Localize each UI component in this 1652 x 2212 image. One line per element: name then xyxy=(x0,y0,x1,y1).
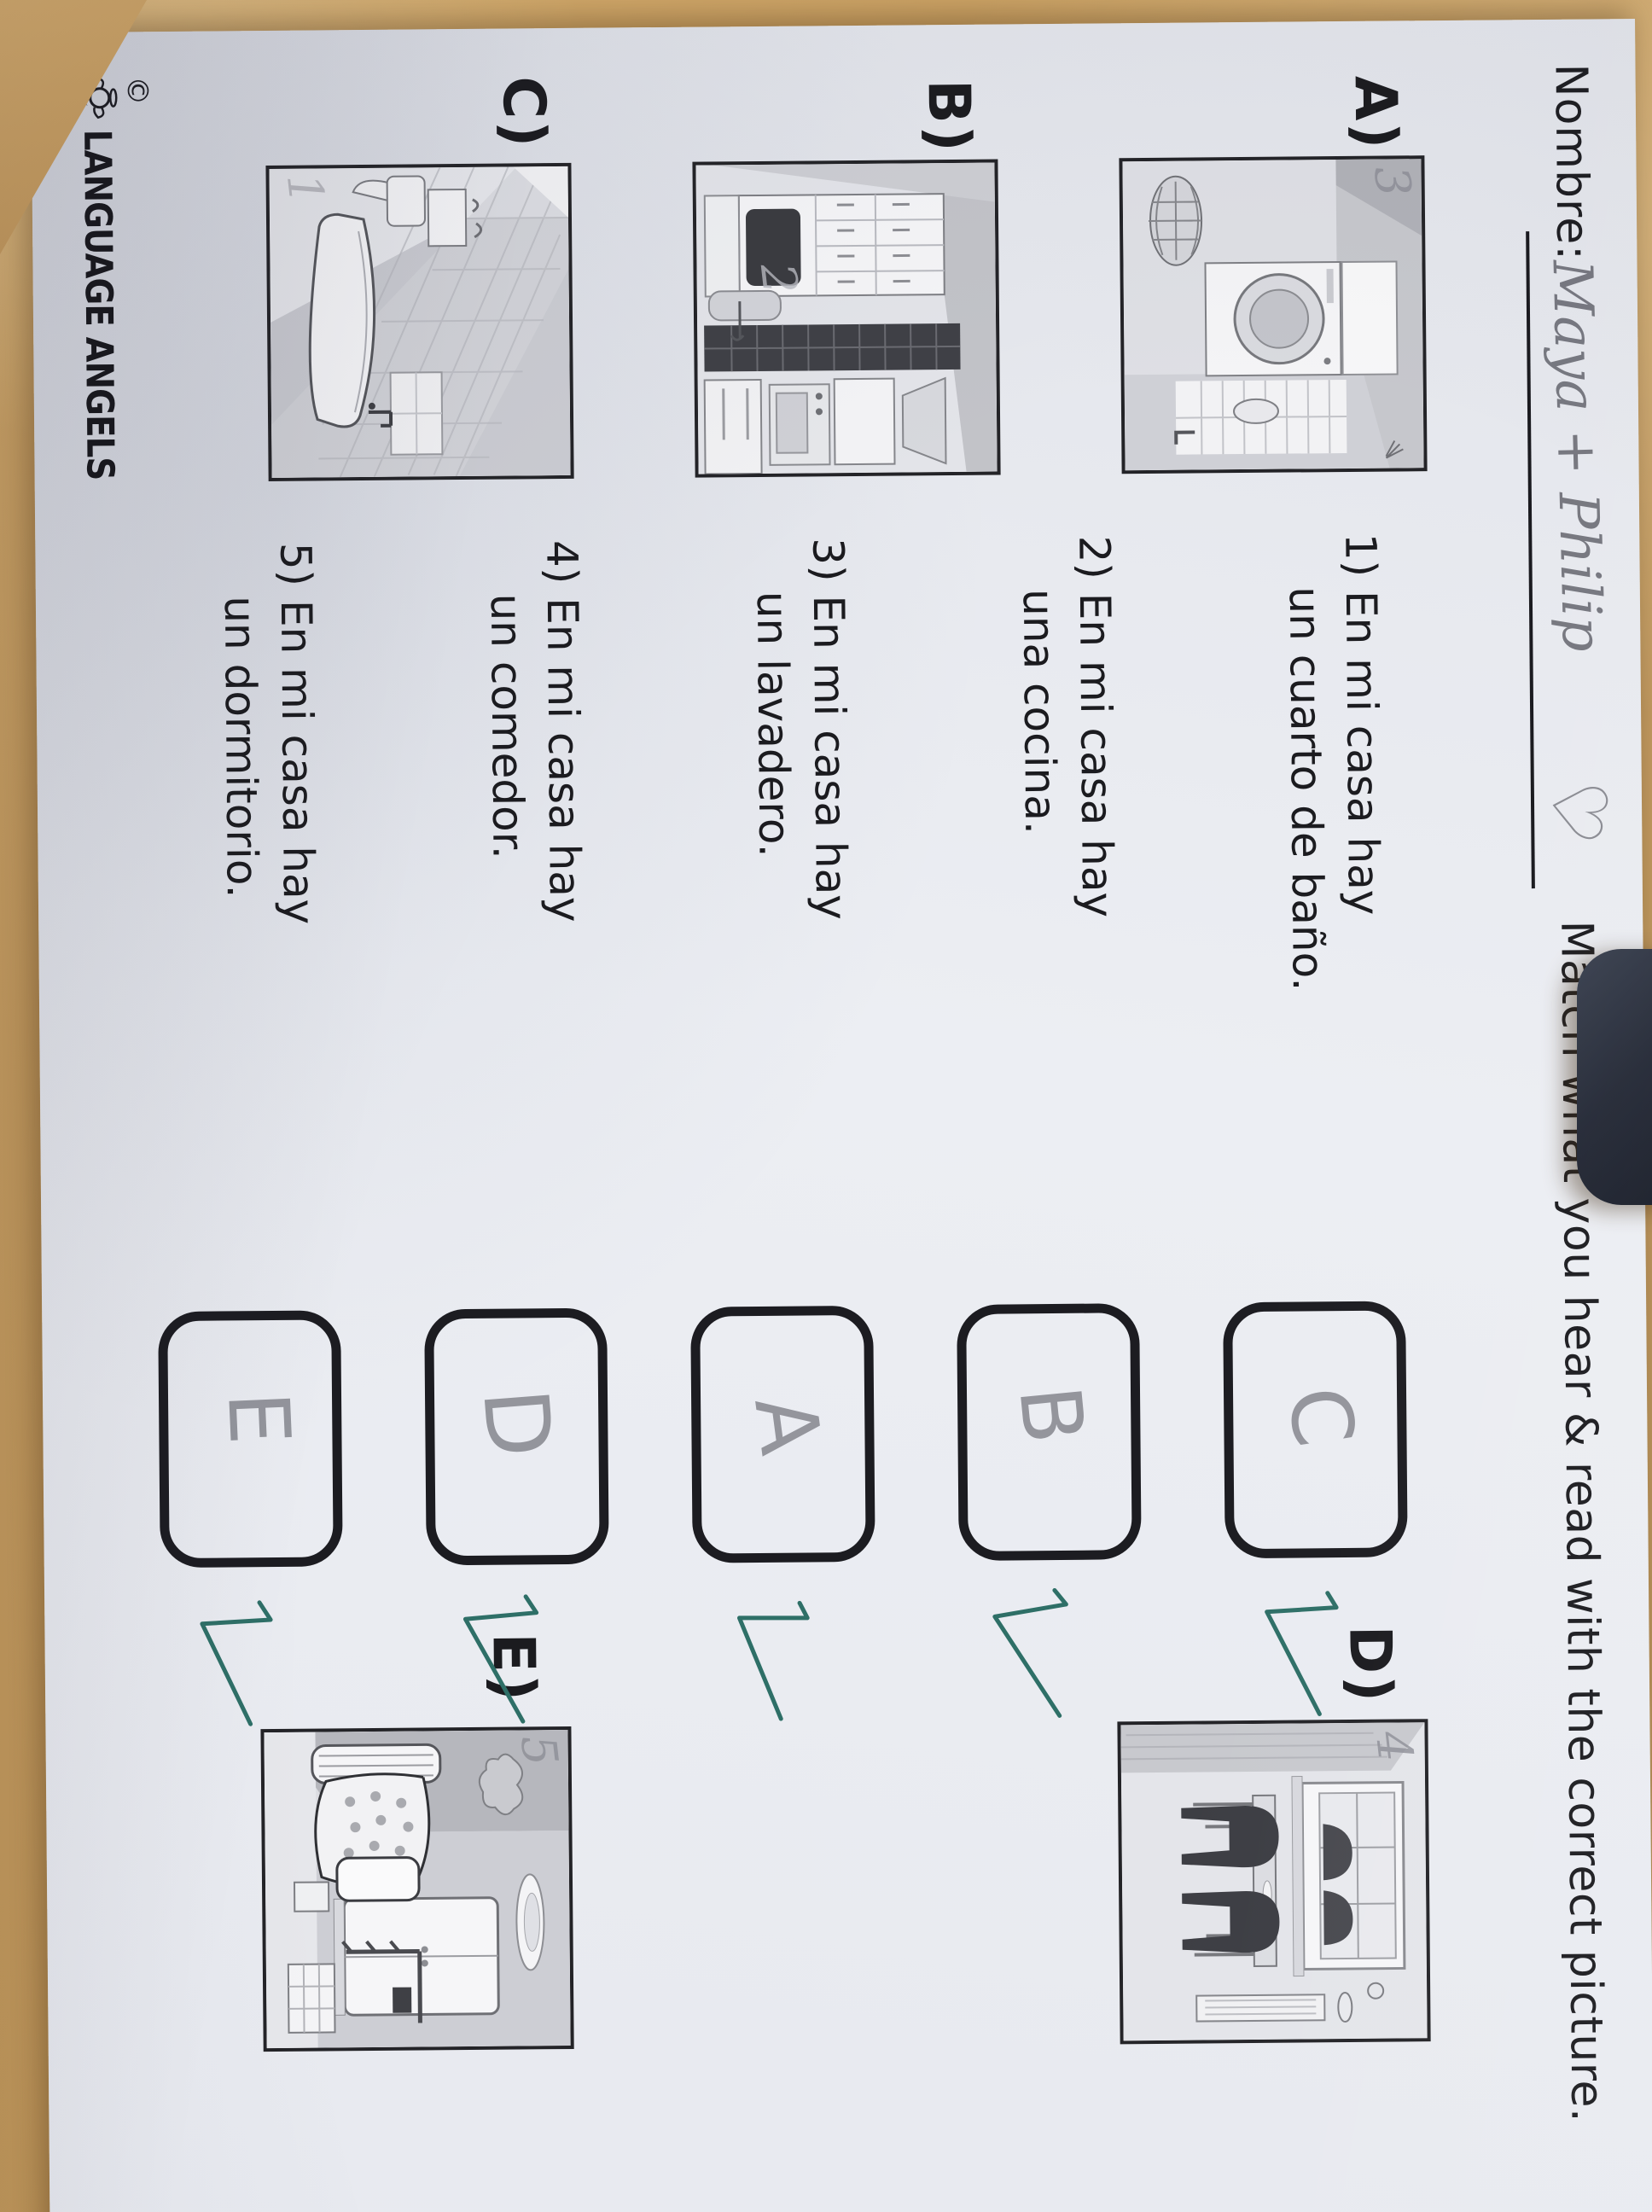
picture-label-a: A) xyxy=(1341,75,1410,150)
picture-a-laundry-room: 3 xyxy=(1119,155,1427,474)
question-1-text: 1) En mi casa hay un cuarto de baño. xyxy=(1276,533,1393,992)
handwritten-answer-5: E xyxy=(171,1296,345,1540)
kitchen-icon xyxy=(695,163,997,474)
question-2-text: 2) En mi casa hay una cocina. xyxy=(1009,535,1126,918)
answer-box-5: E xyxy=(158,1310,343,1568)
picture-e-bedroom: 5 xyxy=(260,1726,573,2052)
question-3-text: 3) En mi casa hay un lavadero. xyxy=(743,538,859,921)
worksheet-sheet: Nombre: Maya + Philip ♡ Match what you h… xyxy=(31,19,1652,2212)
question-4-text: 4) En mi casa hay un comedor. xyxy=(477,540,593,923)
question-row-5: 5) En mi casa hay un dormitorio. E xyxy=(137,542,344,1755)
dining-room-icon xyxy=(1120,1722,1427,2040)
handwritten-answer-3: A xyxy=(690,1297,884,1554)
handwritten-answer-2: B xyxy=(958,1289,1144,1540)
laundry-room-icon xyxy=(1122,159,1423,470)
picture-c-bathroom: 1 xyxy=(265,163,573,481)
teacher-check-3 xyxy=(670,1559,835,1736)
question-row-2: 2) En mi casa hay una cocina. B xyxy=(936,535,1143,1749)
pencil-number-on-b: 2 xyxy=(749,260,808,297)
dark-object-on-desk xyxy=(1577,949,1652,1205)
answer-box-3: A xyxy=(690,1306,875,1563)
teacher-check-2 xyxy=(944,1563,1094,1727)
pencil-number-on-c: 1 xyxy=(276,171,334,207)
bedroom-icon xyxy=(264,1730,570,2048)
picture-d-dining-room: 4 xyxy=(1117,1719,1430,2044)
answer-box-1: C xyxy=(1223,1301,1408,1558)
pencil-number-on-a: 3 xyxy=(1363,163,1422,200)
logo-text: LANGUAGE ANGELS xyxy=(76,130,123,480)
question-3-number: 3) xyxy=(803,538,852,582)
question-5-number: 5) xyxy=(270,542,320,586)
teacher-check-4 xyxy=(409,1567,563,1734)
picture-b-kitchen: 2 xyxy=(692,160,1000,478)
bathroom-icon xyxy=(269,166,570,478)
question-5-text: 5) En mi casa hay un dormitorio. xyxy=(211,542,327,925)
copyright-symbol: © xyxy=(120,76,154,105)
question-1-number: 1) xyxy=(1335,533,1385,578)
handwritten-answer-4: D xyxy=(427,1298,608,1547)
handwritten-answer-1: C xyxy=(1222,1288,1419,1546)
question-row-4: 4) En mi casa hay un comedor. D xyxy=(404,540,610,1754)
handwritten-student-name: Maya + Philip xyxy=(1539,259,1613,653)
question-4-number: 4) xyxy=(537,540,586,585)
teacher-check-5 xyxy=(139,1566,301,1740)
photo-of-worksheet: Nombre: Maya + Philip ♡ Match what you h… xyxy=(0,0,1652,2212)
teacher-check-1 xyxy=(1206,1557,1364,1728)
question-row-3: 3) En mi casa hay un lavadero. A xyxy=(670,538,876,1751)
answer-box-2: B xyxy=(957,1303,1142,1561)
name-underline: Maya + Philip ♡ xyxy=(1526,230,1636,888)
question-2-number: 2) xyxy=(1069,535,1119,579)
picture-label-b: B) xyxy=(915,79,983,154)
handwritten-heart: ♡ xyxy=(1528,769,1625,850)
question-row-1: 1) En mi casa hay un cuarto de baño. C xyxy=(1202,533,1409,1746)
picture-label-c: C) xyxy=(490,76,558,149)
answer-box-4: D xyxy=(424,1308,609,1566)
